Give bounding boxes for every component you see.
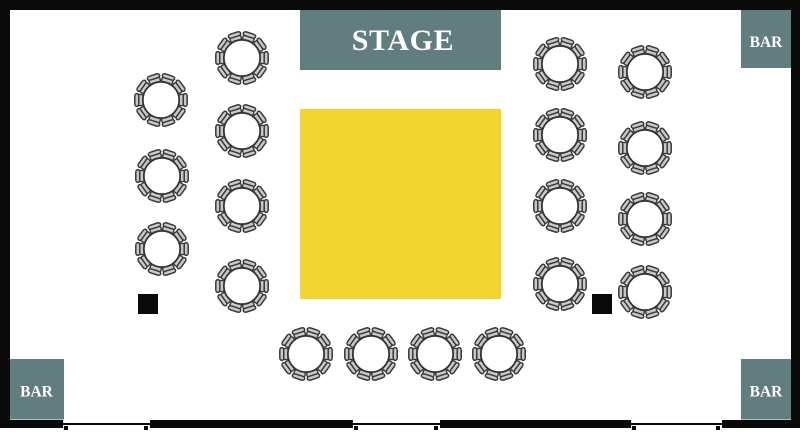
svg-text:STAGE: STAGE — [352, 24, 454, 57]
svg-text:BAR: BAR — [750, 384, 784, 401]
svg-text:BAR: BAR — [20, 384, 54, 401]
svg-text:BAR: BAR — [750, 34, 784, 51]
